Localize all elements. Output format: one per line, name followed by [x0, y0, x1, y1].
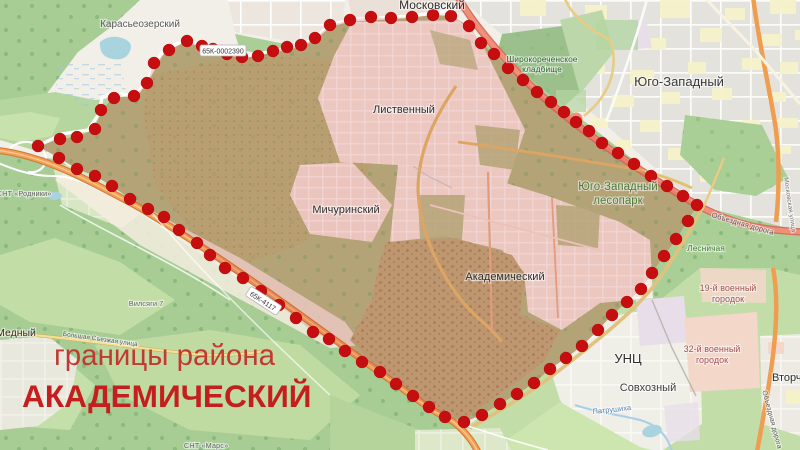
svg-text:АКАДЕМИЧЕСКИЙ: АКАДЕМИЧЕСКИЙ — [22, 378, 311, 414]
svg-text:Юго-Западный: Юго-Западный — [634, 74, 724, 89]
svg-text:19-й военный: 19-й военный — [700, 283, 757, 293]
svg-text:Вилсяги 7: Вилсяги 7 — [129, 299, 164, 308]
svg-text:32-й военный: 32-й военный — [684, 344, 741, 354]
svg-text:СНТ «Марс»: СНТ «Марс» — [184, 441, 228, 450]
svg-text:Карасьеозерский: Карасьеозерский — [100, 19, 180, 30]
svg-text:Академический: Академический — [465, 271, 544, 283]
svg-text:городок: городок — [712, 294, 744, 304]
svg-text:городок: городок — [696, 355, 728, 365]
svg-text:Медный: Медный — [0, 327, 36, 339]
svg-text:Широкореченское: Широкореченское — [506, 54, 577, 64]
svg-text:границы района: границы района — [54, 339, 276, 372]
svg-text:Московский: Московский — [399, 0, 465, 12]
svg-text:СНТ «Родники»: СНТ «Родники» — [0, 189, 51, 198]
svg-text:кладбище: кладбище — [522, 64, 562, 74]
svg-text:лесопарк: лесопарк — [593, 195, 643, 207]
svg-text:УНЦ: УНЦ — [614, 351, 642, 366]
svg-text:Вторчермет: Вторчермет — [772, 372, 800, 384]
svg-text:Лиственный: Лиственный — [373, 104, 435, 116]
svg-text:Мичуринский: Мичуринский — [312, 204, 379, 216]
svg-text:Лесничая: Лесничая — [687, 243, 725, 253]
svg-text:Совхозный: Совхозный — [620, 382, 676, 394]
svg-text:65К-0002390: 65К-0002390 — [202, 49, 244, 56]
svg-text:Юго-Западный: Юго-Западный — [578, 181, 658, 193]
